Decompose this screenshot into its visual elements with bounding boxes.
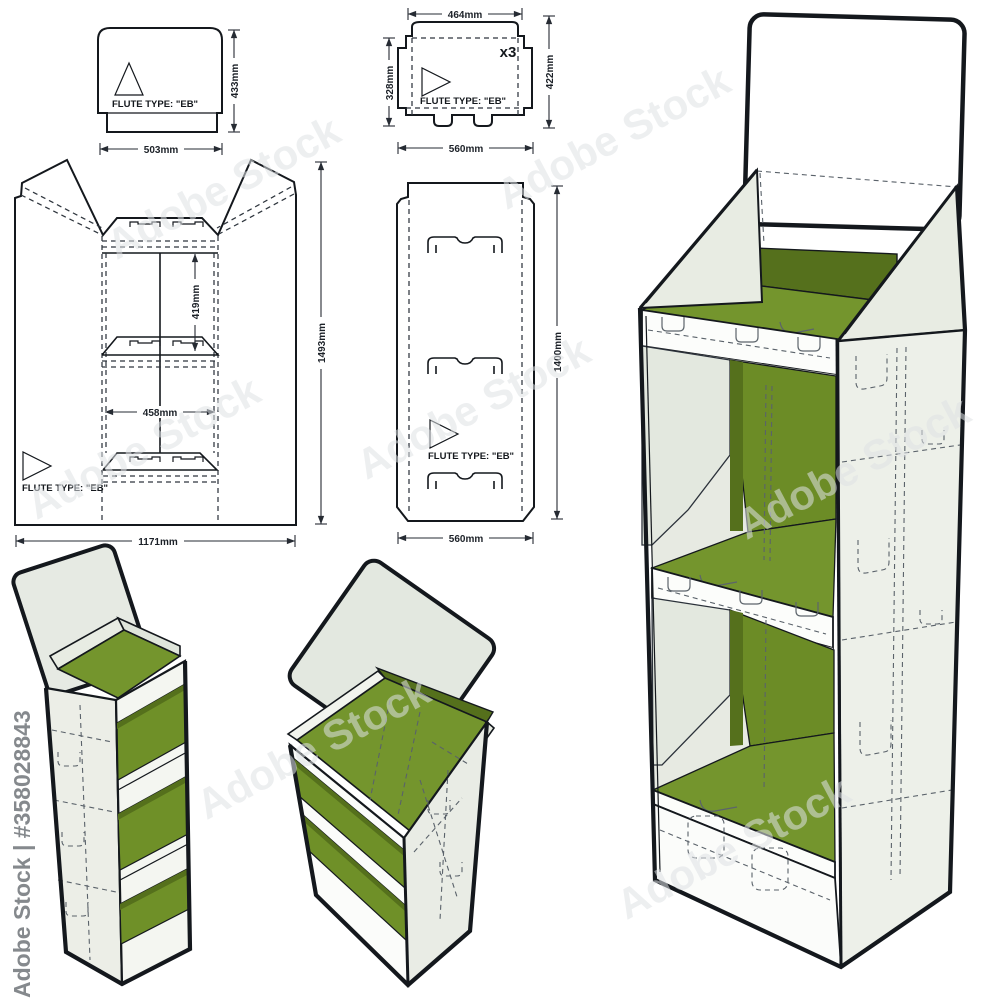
dim-label-433mm: 433mm xyxy=(230,64,241,99)
diagonal-watermark: Adobe Stock xyxy=(349,326,598,488)
flute-triangle-icon xyxy=(115,63,143,95)
flute-type-label: FLUTE TYPE: "EB" xyxy=(420,96,506,107)
quantity-label: x3 xyxy=(500,44,517,61)
dimension-total-height-1493: 1493mm xyxy=(315,162,328,524)
dimension-top-464: 464mm xyxy=(408,8,522,21)
dim-label-422mm: 422mm xyxy=(545,55,556,90)
dimension-width-503: 503mm xyxy=(100,143,222,156)
diagonal-watermark: Adobe Stock xyxy=(99,106,348,268)
dimension-total-width-1171: 1171mm xyxy=(16,535,295,548)
bottom-back-wall-shadow xyxy=(730,610,743,746)
flute-type-label: FLUTE TYPE: "EB" xyxy=(428,451,514,462)
display-stand-3d-rear xyxy=(11,543,190,984)
dim-label-1171mm: 1171mm xyxy=(138,537,178,548)
dimension-width-560: 560mm xyxy=(398,532,533,545)
dim-label-503mm: 503mm xyxy=(144,145,179,156)
stock-illustration-canvas: FLUTE TYPE: "EB" 433mm 503mm x3 FLUTE TY… xyxy=(0,0,1000,1000)
dim-label-464mm: 464mm xyxy=(448,10,483,21)
dimension-bottom-560: 560mm xyxy=(398,142,533,155)
stock-id-watermark: Adobe Stock | #358028843 xyxy=(9,710,35,998)
dieline-illustration: FLUTE TYPE: "EB" 433mm 503mm x3 FLUTE TY… xyxy=(0,0,1000,1000)
dimension-height-433: 433mm xyxy=(228,30,241,132)
stand-header-panel xyxy=(744,14,965,230)
flute-triangle-icon xyxy=(422,68,450,96)
flute-type-label: FLUTE TYPE: "EB" xyxy=(112,99,198,110)
diagonal-watermark: Adobe Stock xyxy=(19,366,268,528)
dimension-right-422: 422mm xyxy=(543,16,556,128)
header-panel-dieline: FLUTE TYPE: "EB" 433mm 503mm xyxy=(98,28,241,156)
dimension-left-328: 328mm xyxy=(383,38,396,126)
dim-label-560mm: 560mm xyxy=(449,534,484,545)
dim-label-1493mm: 1493mm xyxy=(317,323,328,363)
dim-label-328mm: 328mm xyxy=(385,66,396,101)
dim-label-560mm: 560mm xyxy=(449,144,484,155)
rear-shelf-openings xyxy=(117,684,189,944)
dim-label-419mm: 419mm xyxy=(191,285,202,320)
diagonal-watermark: Adobe Stock xyxy=(489,56,738,218)
shelf-tray-dieline: x3 FLUTE TYPE: "EB" 464mm 328mm 422mm 56… xyxy=(383,8,556,155)
